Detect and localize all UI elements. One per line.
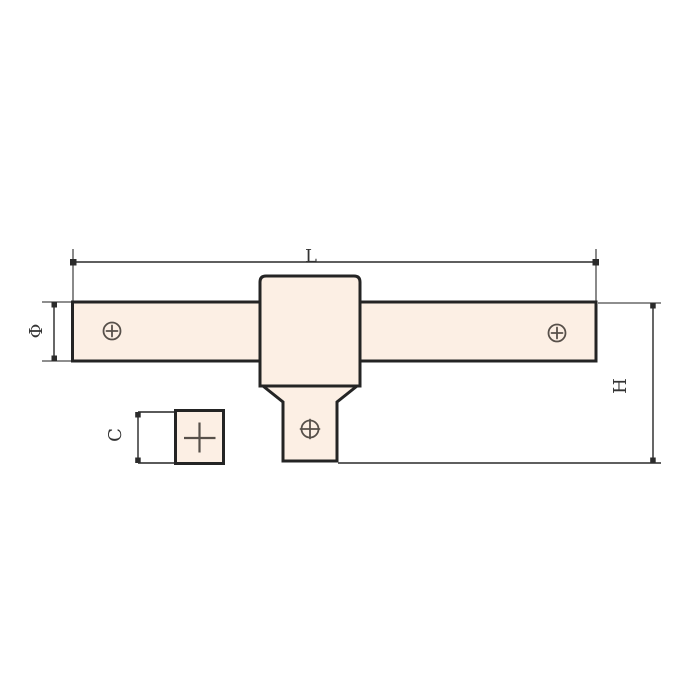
dimension-end-marker — [70, 259, 77, 266]
dimension-end-marker — [52, 302, 58, 308]
dimension-end-marker — [52, 356, 58, 362]
diagram-canvas: L Φ H C — [0, 0, 700, 700]
dimension-end-marker — [135, 412, 141, 418]
screw-cross-icon — [549, 325, 566, 342]
dimension-end-marker — [135, 458, 141, 464]
dimension-end-marker — [650, 458, 656, 464]
screw-cross-icon — [104, 323, 121, 340]
label-drive-size: C — [103, 422, 129, 448]
dimension-end-marker — [650, 303, 656, 309]
t-handle-wrench-drawing — [0, 0, 700, 700]
drive-end-detail-view — [135, 411, 223, 464]
label-length: L — [298, 244, 324, 270]
label-height: H — [608, 373, 634, 399]
dimension-drive-size — [135, 412, 141, 463]
label-diameter: Φ — [24, 318, 50, 344]
center-block — [260, 276, 360, 386]
dimension-end-marker — [593, 259, 600, 266]
